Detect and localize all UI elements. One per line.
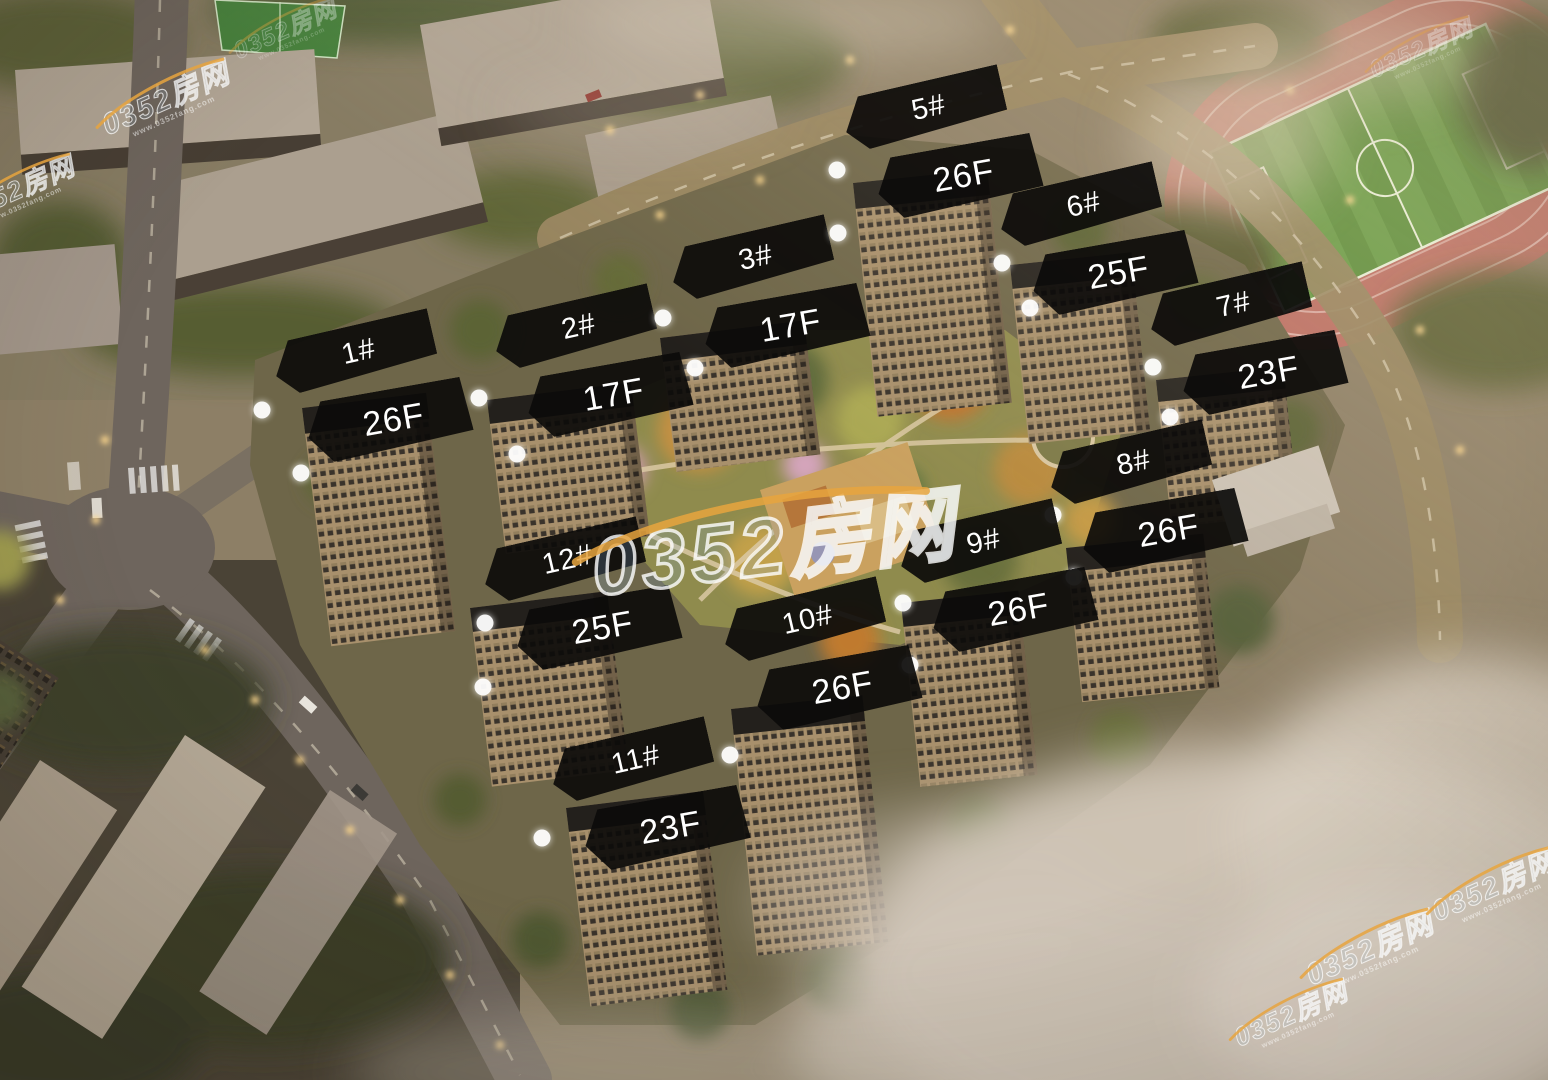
leader-dot — [1066, 569, 1083, 586]
leader-dot — [475, 679, 492, 696]
leader-dot — [829, 162, 846, 179]
leader-dot — [1162, 409, 1179, 426]
leader-dot — [895, 595, 912, 612]
leader-dot — [254, 402, 271, 419]
leader-dot — [1022, 300, 1039, 317]
leader-dot — [722, 747, 739, 764]
leader-dot — [1045, 507, 1062, 524]
leader-dot — [830, 225, 847, 242]
leader-dot — [509, 446, 526, 463]
leader-dot — [534, 830, 551, 847]
leader-dot — [477, 615, 494, 632]
leader-dot — [1145, 359, 1162, 376]
aerial-background-art — [0, 0, 1548, 1080]
leader-dot — [293, 465, 310, 482]
leader-dot — [902, 657, 919, 674]
site-plan-rendering: 1# 26F 2# 17F 3# 17F 5# 26F 6# 25F 7# 23… — [0, 0, 1548, 1080]
leader-dot — [655, 310, 672, 327]
leader-dot — [687, 360, 704, 377]
leader-dot — [994, 255, 1011, 272]
leader-dot — [471, 390, 488, 407]
